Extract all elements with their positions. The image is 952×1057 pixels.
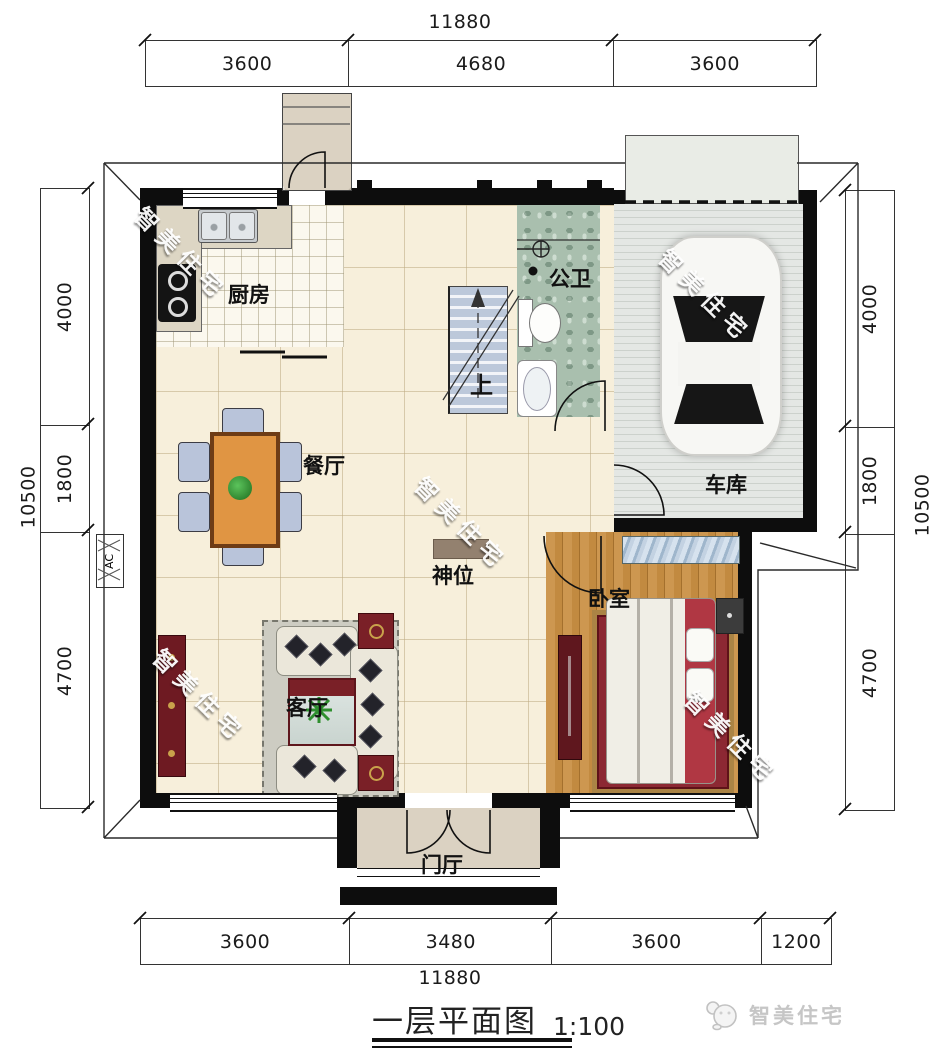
dim-bottom-total: 11880 — [360, 967, 540, 989]
wall-pilaster — [587, 180, 602, 189]
wall-pilaster — [477, 180, 492, 189]
basin-bowl — [523, 367, 551, 411]
knob-icon — [727, 613, 732, 618]
foyer-base — [340, 887, 557, 905]
brand-name: 智美住宅 — [749, 1000, 845, 1030]
wall — [600, 518, 817, 532]
title-block: 一层平面图 1:100 — [372, 996, 625, 1041]
kitchen-window — [183, 188, 277, 209]
dim-seg: 4700 — [54, 645, 76, 695]
room-label-shrine: 神位 — [432, 560, 474, 590]
dim-chain-left: 4000 1800 4700 — [40, 188, 90, 809]
dim-seg: 3600 — [552, 919, 761, 964]
dim-right-total: 10500 — [898, 425, 946, 585]
wall — [492, 793, 570, 808]
dim-seg: 4000 — [54, 282, 76, 332]
wall — [325, 188, 614, 205]
dim-chain-top: 3600 4680 3600 — [145, 40, 817, 87]
title-underline-thick — [372, 1038, 572, 1042]
dim-seg: 1200 — [762, 919, 831, 964]
ac-label: AC — [103, 553, 116, 568]
page-title: 一层平面图 — [372, 996, 537, 1041]
title-underline-thin — [372, 1046, 572, 1048]
wardrobe — [558, 635, 582, 760]
floor-plan-canvas: 11880 3600 4680 3600 3600 3480 3600 1200… — [0, 0, 952, 1057]
table-plant-icon — [228, 476, 252, 500]
car-roof — [678, 342, 760, 386]
room-label-bedroom: 卧室 — [588, 583, 630, 613]
nightstand — [716, 598, 744, 634]
dim-seg: 3600 — [146, 41, 348, 86]
dim-seg: 4000 — [859, 284, 881, 334]
dim-seg: 1800 — [54, 454, 76, 504]
wall — [803, 190, 817, 532]
foyer-pier — [540, 808, 560, 868]
dim-chain-right: 4000 1800 4700 — [845, 190, 895, 811]
wall-pilaster — [357, 180, 372, 189]
stairs-up-label: 上 — [470, 366, 493, 400]
brand-logo: 智美住宅 — [703, 998, 845, 1032]
side-table — [358, 613, 394, 649]
room-label-dining: 餐厅 — [303, 450, 345, 480]
mascot-icon — [703, 998, 741, 1032]
dim-seg: 3600 — [614, 41, 816, 86]
room-label-living: 客厅 — [286, 692, 328, 722]
room-label-foyer: 门厅 — [421, 849, 463, 879]
knob-icon — [369, 766, 384, 781]
washbasin — [517, 360, 557, 417]
wall — [140, 793, 170, 808]
dim-seg: 3480 — [349, 919, 552, 964]
dining-chair — [178, 492, 210, 532]
toilet-bowl — [529, 303, 561, 343]
knob-icon — [369, 624, 384, 639]
room-label-bath: 公卫 — [549, 263, 591, 293]
back-porch-slab — [282, 93, 352, 191]
garage-apron — [625, 135, 799, 204]
wall — [140, 188, 156, 808]
bedroom-window — [570, 793, 735, 812]
pillow — [686, 628, 714, 662]
dim-seg: 4700 — [859, 647, 881, 697]
knob-icon — [168, 702, 175, 709]
living-window — [170, 793, 337, 812]
kitchen-sink — [198, 209, 258, 243]
dining-chair — [178, 442, 210, 482]
dim-seg: 3600 — [141, 919, 349, 964]
wall-pilaster — [537, 180, 552, 189]
dim-seg: 4680 — [348, 41, 613, 86]
side-table — [358, 755, 394, 791]
sink-basin — [229, 212, 255, 240]
burner-icon — [168, 297, 188, 317]
dim-chain-bottom: 3600 3480 3600 1200 — [140, 918, 832, 965]
room-label-garage: 车库 — [705, 469, 747, 499]
dim-seg: 1800 — [859, 456, 881, 506]
knob-icon — [168, 750, 175, 757]
wardrobe-handle — [568, 656, 571, 736]
plan-scale: 1:100 — [553, 1012, 625, 1041]
dim-top-total: 11880 — [370, 11, 550, 33]
ac-platform: AC — [96, 534, 124, 588]
bedroom-window-curtain — [622, 536, 740, 564]
sink-basin — [201, 212, 227, 240]
foyer-pier — [337, 808, 357, 868]
car-rear-glass — [668, 384, 770, 424]
